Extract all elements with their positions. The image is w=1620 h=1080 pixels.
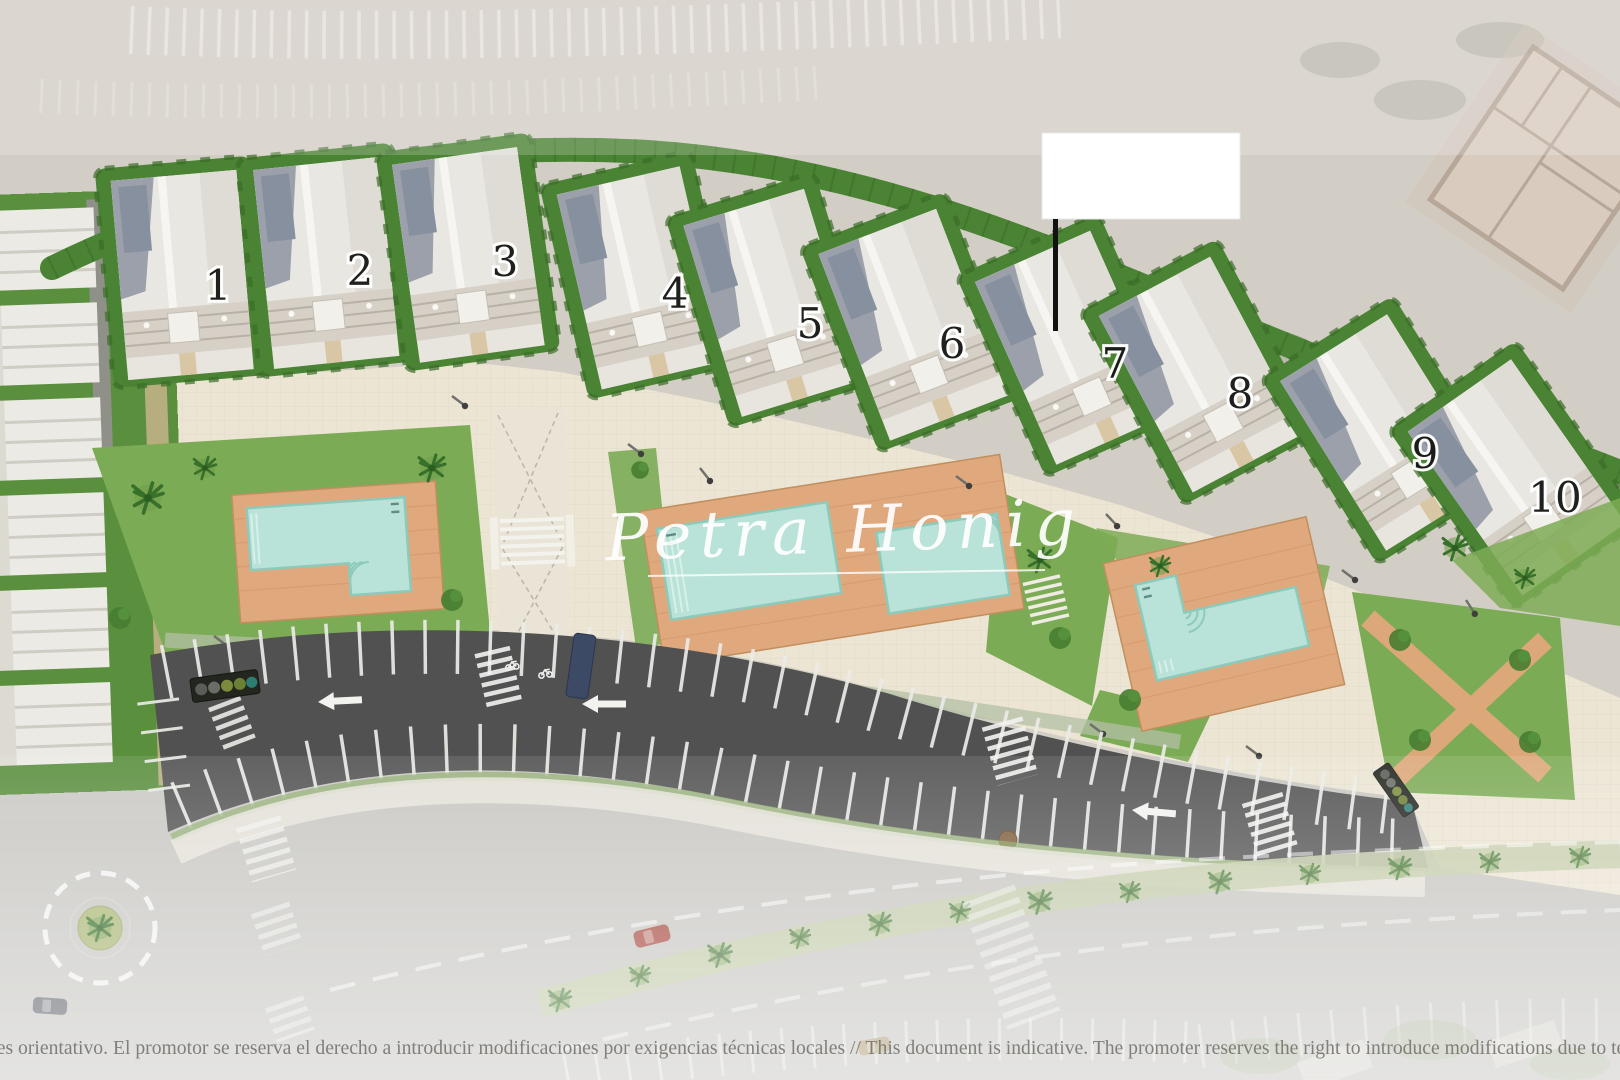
plot-number-2: 2 bbox=[347, 246, 374, 295]
plot-number-4: 4 bbox=[662, 269, 689, 318]
tree-icon bbox=[441, 589, 463, 611]
plot-number-3: 3 bbox=[492, 237, 519, 286]
tree-icon bbox=[1049, 627, 1071, 649]
plot-number-6: 6 bbox=[939, 319, 966, 368]
marker-line bbox=[1053, 219, 1058, 331]
tree-icon bbox=[109, 607, 131, 629]
plot-number-9: 9 bbox=[1412, 429, 1439, 478]
tree-icon bbox=[1509, 649, 1531, 671]
plot-number-7: 7 bbox=[1102, 339, 1129, 388]
tree-icon bbox=[1389, 629, 1411, 651]
plot-number-1: 1 bbox=[205, 261, 232, 310]
tree-icon bbox=[1119, 689, 1141, 711]
house-3 bbox=[375, 132, 560, 372]
plot-number-10: 10 bbox=[1528, 473, 1581, 522]
tree-icon bbox=[631, 461, 649, 479]
disclaimer-text: o es orientativo. El promotor se reserva… bbox=[0, 1038, 1620, 1059]
tree-icon bbox=[1409, 729, 1431, 751]
site-plan: 1 2 3 4 5 6 7 8 9 10 Petra Honig o es or… bbox=[0, 0, 1620, 1080]
label-box bbox=[1042, 133, 1240, 219]
bottom-fade bbox=[0, 756, 1620, 1080]
plot-number-8: 8 bbox=[1227, 369, 1254, 418]
site-plan-canvas: 1 2 3 4 5 6 7 8 9 10 Petra Honig o es or… bbox=[0, 0, 1620, 1080]
top-fade bbox=[0, 0, 1620, 155]
pool-deck-1 bbox=[232, 481, 444, 623]
plot-number-5: 5 bbox=[797, 299, 824, 348]
tree-icon bbox=[1519, 731, 1541, 753]
stairs-walkway bbox=[486, 407, 579, 660]
